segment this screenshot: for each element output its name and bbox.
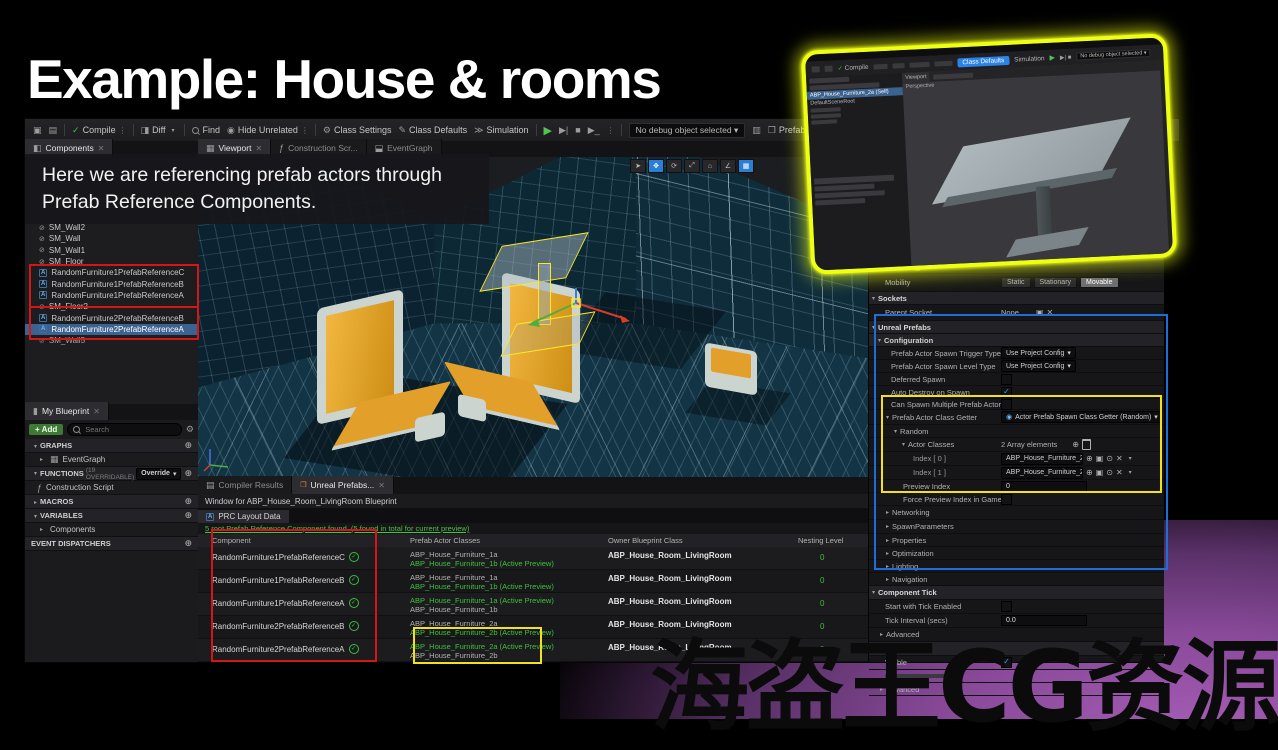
divider: [536, 124, 537, 136]
watermark-text: 海盗王CG资源: [650, 606, 1278, 750]
inset-compile-button[interactable]: Compile: [844, 63, 868, 71]
static-mesh-icon: ⊘: [39, 235, 45, 243]
scale-icon[interactable]: ⤢: [684, 159, 700, 173]
plus-icon: +: [35, 425, 40, 434]
inset-debug-dropdown[interactable]: No debug object selected ▾: [1076, 49, 1151, 61]
graphs-section[interactable]: ▾GRAPHS⊕: [25, 439, 198, 453]
stop-button[interactable]: ■: [575, 125, 580, 135]
components-group-item[interactable]: ▸Components: [25, 523, 198, 537]
variables-section[interactable]: ▾VARIABLES⊕: [25, 509, 198, 523]
compile-options-icon[interactable]: ⋮: [119, 126, 126, 135]
annotation-red-box-furniture1: [29, 264, 199, 308]
eventgraph-item[interactable]: ▸▦EventGraph: [25, 453, 198, 467]
annotation-yellow-box-active-class: [413, 627, 542, 664]
viewport-toolbar: ➤ ✥ ⟳ ⤢ ⌂ ∠ ▦: [630, 159, 754, 173]
grid-snap-icon[interactable]: ▦: [738, 159, 754, 173]
component-tick-section[interactable]: ▾Component Tick: [869, 586, 1164, 600]
play-button[interactable]: ▶: [544, 124, 552, 137]
add-graph-icon[interactable]: ⊕: [184, 440, 192, 451]
graph-icon: ▦: [50, 454, 59, 465]
window-label: Window for ABP_House_Room_LivingRoom Blu…: [198, 494, 893, 508]
static-mesh-icon: ⊘: [39, 224, 45, 232]
graph-icon: ⬓: [375, 143, 384, 154]
compile-button[interactable]: ✓Compile⋮: [72, 125, 126, 136]
chevron-down-icon: ▾: [171, 127, 174, 134]
add-macro-icon[interactable]: ⊕: [184, 496, 192, 507]
select-icon[interactable]: ➤: [630, 159, 646, 173]
add-dispatcher-icon[interactable]: ⊕: [184, 538, 192, 549]
search-input-wrap: [67, 423, 182, 436]
inset-class-defaults-button[interactable]: Class Defaults: [957, 55, 1009, 67]
col-nesting[interactable]: Nesting Level: [798, 536, 843, 545]
bench-right-partial[interactable]: [703, 337, 763, 401]
class-defaults-button[interactable]: ✎Class Defaults: [399, 125, 468, 136]
close-icon[interactable]: ✕: [98, 144, 105, 153]
close-icon[interactable]: ✕: [378, 481, 385, 490]
search-input[interactable]: [83, 424, 157, 435]
close-icon[interactable]: ✕: [255, 144, 262, 153]
bottom-tabbar: ▤Compiler Results ❒Unreal Prefabs...✕: [198, 477, 893, 494]
prefab-reference-icon: A: [206, 513, 214, 521]
static-mesh-icon: ⊘: [39, 246, 45, 254]
transform-gizmo[interactable]: [518, 285, 638, 335]
add-variable-icon[interactable]: ⊕: [184, 510, 192, 521]
functions-section[interactable]: ▾FUNCTIONS (19 OVERRIDABLE)Override ▾⊕: [25, 467, 198, 481]
hide-unrelated-button[interactable]: ◉Hide Unrelated⋮: [227, 125, 308, 136]
function-icon: ƒ: [37, 483, 42, 493]
tab-my-blueprint[interactable]: ▮My Blueprint✕: [25, 402, 109, 420]
override-dropdown[interactable]: Override ▾: [136, 468, 181, 480]
inset-viewport: Viewport Perspective: [902, 61, 1169, 266]
mobility-segmented: Static Stationary Movable: [1001, 277, 1119, 288]
divider: [133, 124, 134, 136]
blueprint-icon: ▮: [33, 406, 38, 417]
navigation-section[interactable]: ▸Navigation: [869, 573, 1164, 586]
annotation-yellow-box-class-getter: [881, 395, 1162, 493]
compiler-icon: ▤: [206, 480, 215, 491]
caption-line2: Prefab Reference Components.: [42, 189, 472, 216]
find-button[interactable]: Find: [192, 125, 220, 135]
mobility-stationary[interactable]: Stationary: [1034, 277, 1078, 288]
divider: [315, 124, 316, 136]
add-button[interactable]: +Add: [29, 424, 63, 435]
bench-left[interactable]: [315, 287, 455, 455]
save-icon: ▣: [33, 125, 42, 136]
simulation-button[interactable]: ≫Simulation: [474, 125, 528, 136]
frame-skip-button[interactable]: ▶|: [559, 125, 568, 136]
inset-editor-window: ✓Compile Class Defaults Simulation ▶ ▶| …: [801, 33, 1178, 275]
options-icon[interactable]: ⋮: [301, 126, 308, 135]
page-title: Example: House & rooms: [27, 47, 660, 111]
simulation-icon: ≫: [474, 125, 483, 136]
sockets-section[interactable]: ▾Sockets: [869, 292, 1164, 305]
construction-script-item[interactable]: ƒConstruction Script: [25, 481, 198, 495]
inset-play-icon[interactable]: ▶: [1049, 54, 1055, 62]
myblueprint-tabbar: ▮My Blueprint✕: [25, 404, 198, 420]
viewport-icon: ▦: [206, 143, 215, 154]
world-space-icon[interactable]: ⌂: [702, 159, 718, 173]
function-icon: ƒ: [279, 143, 284, 153]
tab-unreal-prefabs[interactable]: ❒Unreal Prefabs...✕: [292, 476, 394, 494]
gear-icon[interactable]: ⚙: [186, 424, 194, 435]
inset-left-panel: ABP_House_Furniture_2a (Self) DefaultSce…: [806, 73, 912, 271]
component-row[interactable]: ⊘SM_Wall: [25, 233, 198, 244]
diff-button[interactable]: ◨Diff▾: [141, 125, 178, 136]
divider: [184, 124, 185, 136]
search-icon: [192, 127, 199, 134]
hide-unrelated-icon: ◉: [227, 125, 235, 136]
class-settings-button[interactable]: ⚙Class Settings: [323, 125, 392, 136]
inset-simulation-button[interactable]: Simulation: [1014, 55, 1045, 63]
mobility-movable[interactable]: Movable: [1080, 277, 1118, 288]
inset-table-pedestal: [1036, 186, 1053, 239]
prefab-icon: ❒: [768, 125, 776, 136]
annotation-red-box-furniture2: [29, 306, 199, 340]
caption-overlay: Here we are referencing prefab actors th…: [25, 154, 489, 224]
browse-button[interactable]: ▤: [49, 125, 58, 136]
mobility-row: Mobility Static Stationary Movable: [869, 274, 1164, 292]
divider: [621, 124, 622, 136]
prc-layout-data-tab[interactable]: APRC Layout Data: [198, 510, 289, 523]
snap-icon[interactable]: ∠: [720, 159, 736, 173]
move-icon[interactable]: ✥: [648, 159, 664, 173]
my-blueprint-panel: +Add ⚙ ▾GRAPHS⊕ ▸▦EventGraph ▾FUNCTIONS …: [25, 420, 198, 662]
wrench-icon: ✎: [399, 125, 407, 136]
compile-check-icon: ✓: [837, 65, 842, 72]
annotation-red-box-table-components: [211, 529, 377, 662]
advance-button[interactable]: ▶_: [588, 125, 600, 136]
caption-line1: Here we are referencing prefab actors th…: [42, 162, 472, 189]
gear-icon: ⚙: [323, 125, 331, 136]
search-icon: [73, 426, 80, 433]
macros-section[interactable]: ▸MACROS⊕: [25, 495, 198, 509]
close-icon[interactable]: ✕: [93, 407, 100, 416]
debug-filter-icon[interactable]: ▥: [752, 125, 761, 136]
save-button[interactable]: ▣: [33, 125, 42, 136]
mobility-static[interactable]: Static: [1001, 277, 1031, 288]
rotate-icon[interactable]: ⟳: [666, 159, 682, 173]
col-prefab-classes[interactable]: Prefab Actor Classes: [410, 536, 480, 545]
compile-check-icon: ✓: [72, 125, 80, 136]
table-top: [479, 232, 588, 292]
components-icon: ◧: [33, 143, 42, 154]
col-owner[interactable]: Owner Blueprint Class: [608, 536, 683, 545]
axis-indicator: [202, 443, 232, 473]
play-options-icon[interactable]: ⋮: [607, 126, 614, 135]
component-row[interactable]: ⊘SM_Wall1: [25, 245, 198, 256]
browse-icon: ▤: [49, 125, 58, 136]
diff-icon: ◨: [141, 125, 150, 136]
debug-object-dropdown[interactable]: No debug object selected ▾: [629, 123, 746, 138]
divider: [64, 124, 65, 136]
prefab-tab-icon: ❒: [300, 481, 306, 489]
add-function-icon[interactable]: ⊕: [184, 468, 192, 479]
tab-compiler-results[interactable]: ▤Compiler Results: [198, 476, 292, 494]
event-dispatchers-section[interactable]: EVENT DISPATCHERS⊕: [25, 537, 198, 551]
